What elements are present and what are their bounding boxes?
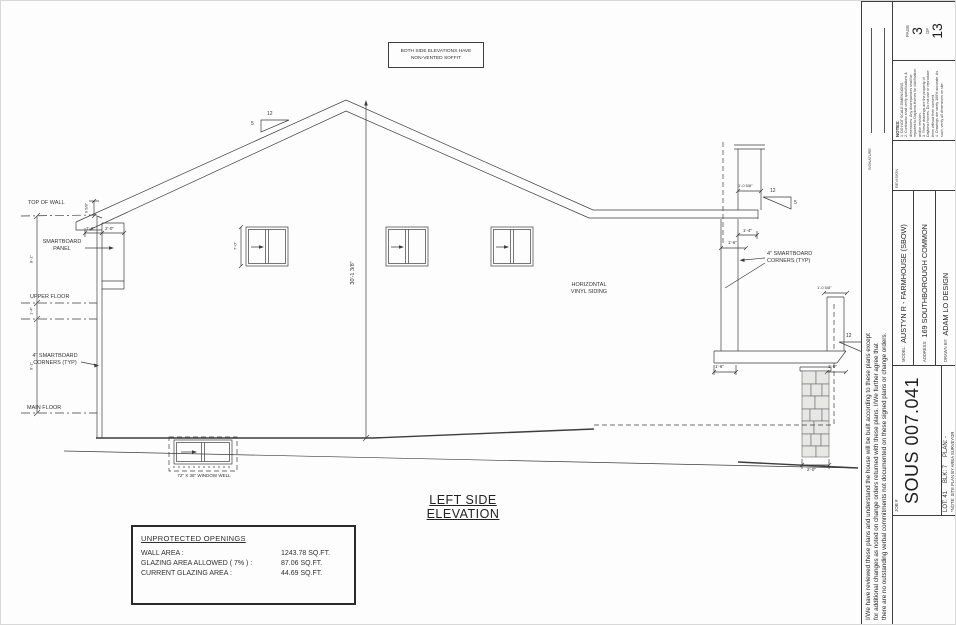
drawn-by-label: DRAWN BY:: [943, 339, 948, 362]
dim-corner-right: 1'-0 5/8": [817, 285, 832, 290]
roof-lines: [76, 100, 758, 230]
smartboard-corners-right-label: 4" SMARTBOARD CORNERS (TYP): [767, 251, 812, 265]
lot-block-plan: LOT: 41 BLK: 7 PLAN: - *NOTE: SITE PLAN …: [941, 366, 956, 515]
dim-porch-left: 1'-6": [715, 364, 724, 369]
notes-cell: NOTES: 1. DO NOT SCALE DIMENSIONS. 2. Co…: [893, 60, 956, 140]
blk-value: BLK: 7: [943, 465, 949, 483]
revision-cell: REVISION: [893, 140, 956, 190]
pitch-run-right-upper: 12: [770, 188, 776, 194]
openings-header: UNPROTECTED OPENINGS: [141, 534, 346, 543]
note-item: 4. Drawings are rarely 100% accurate. As…: [935, 64, 944, 137]
site-plan-note: *NOTE: SITE PLAN BY AREA SURVEYOR: [950, 369, 955, 512]
upper-floor-label: UPPER FLOOR: [30, 294, 69, 301]
current-glazing-value: 44.69 SQ.FT.: [281, 569, 322, 579]
dim-panel-width: 2'-0": [105, 226, 114, 231]
soffit-note-line1: BOTH SIDE ELEVATIONS HAVE: [389, 49, 483, 56]
unprotected-openings-box: UNPROTECTED OPENINGS WALL AREA : 1243.78…: [131, 525, 356, 605]
window-well-label: 72" X 36" WINDOW WELL: [169, 473, 239, 478]
dim-main-wall: 9'-1": [29, 362, 34, 370]
signature-line: [884, 28, 885, 133]
dim-window-height: 7'-0": [233, 242, 238, 250]
drawing-sheet: BOTH SIDE ELEVATIONS HAVE NON-VENTED SOF…: [0, 0, 956, 625]
table-row: WALL AREA : 1243.78 SQ.FT.: [141, 549, 346, 559]
current-glazing-label: CURRENT GLAZING AREA :: [141, 569, 281, 579]
owner-agreement-text: I/We have reviewed these plans and under…: [862, 2, 892, 625]
job-cell: JOB # SOUS 007.041 LOT: 41 BLK: 7 PLAN: …: [893, 365, 956, 515]
title-block-bar: JOB # SOUS 007.041 LOT: 41 BLK: 7 PLAN: …: [892, 2, 956, 625]
project-info-cell: MODEL: AUSTYN R - FARMHOUSE (SBOW) ADDRE…: [893, 190, 956, 365]
table-row: GLAZING AREA ALLOWED ( 7% ) : 87.06 SQ.F…: [141, 559, 346, 569]
smartboard-panel-label: SMARTBOARD PANEL: [39, 239, 85, 253]
wall-area-label: WALL AREA :: [141, 549, 281, 559]
dim-eave-left: 1'-6": [86, 226, 95, 231]
revision-label: REVISION: [893, 141, 900, 190]
pitch-run-left: 12: [267, 111, 273, 117]
smartboard-corners-left-label: 4" SMARTBOARD CORNERS (TYP): [31, 353, 79, 367]
dim-porch-right: 1'-0": [828, 364, 837, 369]
page-total: 13: [930, 23, 945, 39]
soffit-note-line2: NON-VENTED SOFFIT: [389, 56, 483, 63]
title-block: I/We have reviewed these plans and under…: [861, 1, 956, 625]
dim-wall-top: 9 5/8": [84, 203, 89, 213]
glazing-allowed-value: 87.06 SQ.FT.: [281, 559, 322, 569]
dimension-lines: [21, 100, 849, 469]
pitch-rise-left: 5: [251, 121, 254, 127]
drawn-by-row: DRAWN BY: ADAM LO DESIGN: [936, 191, 956, 365]
address-label: ADDRESS:: [922, 341, 927, 362]
model-label: MODEL:: [901, 346, 906, 362]
dim-fascia-1: 1'-4": [743, 228, 752, 233]
note-item: 2. Contractor shall verify specification…: [904, 64, 922, 137]
soffit-note-box: BOTH SIDE ELEVATIONS HAVE NON-VENTED SOF…: [388, 42, 484, 68]
main-floor-label: MAIN FLOOR: [27, 405, 61, 412]
lot-value: LOT: 41: [943, 491, 949, 512]
pitch-markers: [261, 120, 867, 354]
address-value: 169 SOUTHBOROUGH COMMON: [920, 224, 929, 338]
top-of-wall-label: TOP OF WALL: [28, 200, 65, 207]
page-number: 3: [910, 27, 925, 35]
dim-upper-wall: 8'-1": [29, 255, 34, 263]
dim-pillar-width: 2'-0": [807, 467, 816, 472]
leader-lines: [81, 246, 765, 367]
wall-area-value: 1243.78 SQ.FT.: [281, 549, 330, 559]
glazing-allowed-label: GLAZING AREA ALLOWED ( 7% ) :: [141, 559, 281, 569]
stone-pillar: [802, 371, 829, 457]
pitch-run-right-lower: 12: [846, 333, 852, 339]
seal-cell: [893, 515, 956, 625]
wall-lines: [97, 216, 844, 438]
dim-fascia-2: 1'-6": [728, 240, 737, 245]
drawn-by-value: ADAM LO DESIGN: [941, 273, 950, 336]
plan-value: PLAN: -: [943, 436, 949, 457]
dim-overall-height: 30'-1 3/8": [350, 261, 356, 284]
siding-label: HORIZONTAL VINYL SIDING: [564, 282, 614, 296]
note-item: 3. These drawings are the property of Da…: [922, 64, 935, 137]
porch-lines: [714, 351, 846, 371]
table-row: CURRENT GLAZING AREA : 44.69 SQ.FT.: [141, 569, 346, 579]
signature-label: SIGNATURE: [867, 148, 875, 170]
job-number: SOUS 007.041: [899, 366, 941, 515]
model-row: MODEL: AUSTYN R - FARMHOUSE (SBOW): [893, 191, 914, 365]
dim-floor-depth: 1'-4": [29, 307, 34, 315]
model-value: AUSTYN R - FARMHOUSE (SBOW): [899, 224, 908, 343]
signature-line: [871, 28, 872, 133]
foundation-grade-lines: [64, 304, 858, 468]
drawing-title: LEFT SIDE ELEVATION: [393, 493, 533, 521]
pitch-rise-right-upper: 5: [794, 200, 797, 206]
address-row: ADDRESS: 169 SOUTHBOROUGH COMMON: [914, 191, 935, 365]
dim-dormer-width: 1'-0 5/8": [738, 183, 753, 188]
page-cell: PAGE 3 OF 13: [893, 2, 956, 60]
